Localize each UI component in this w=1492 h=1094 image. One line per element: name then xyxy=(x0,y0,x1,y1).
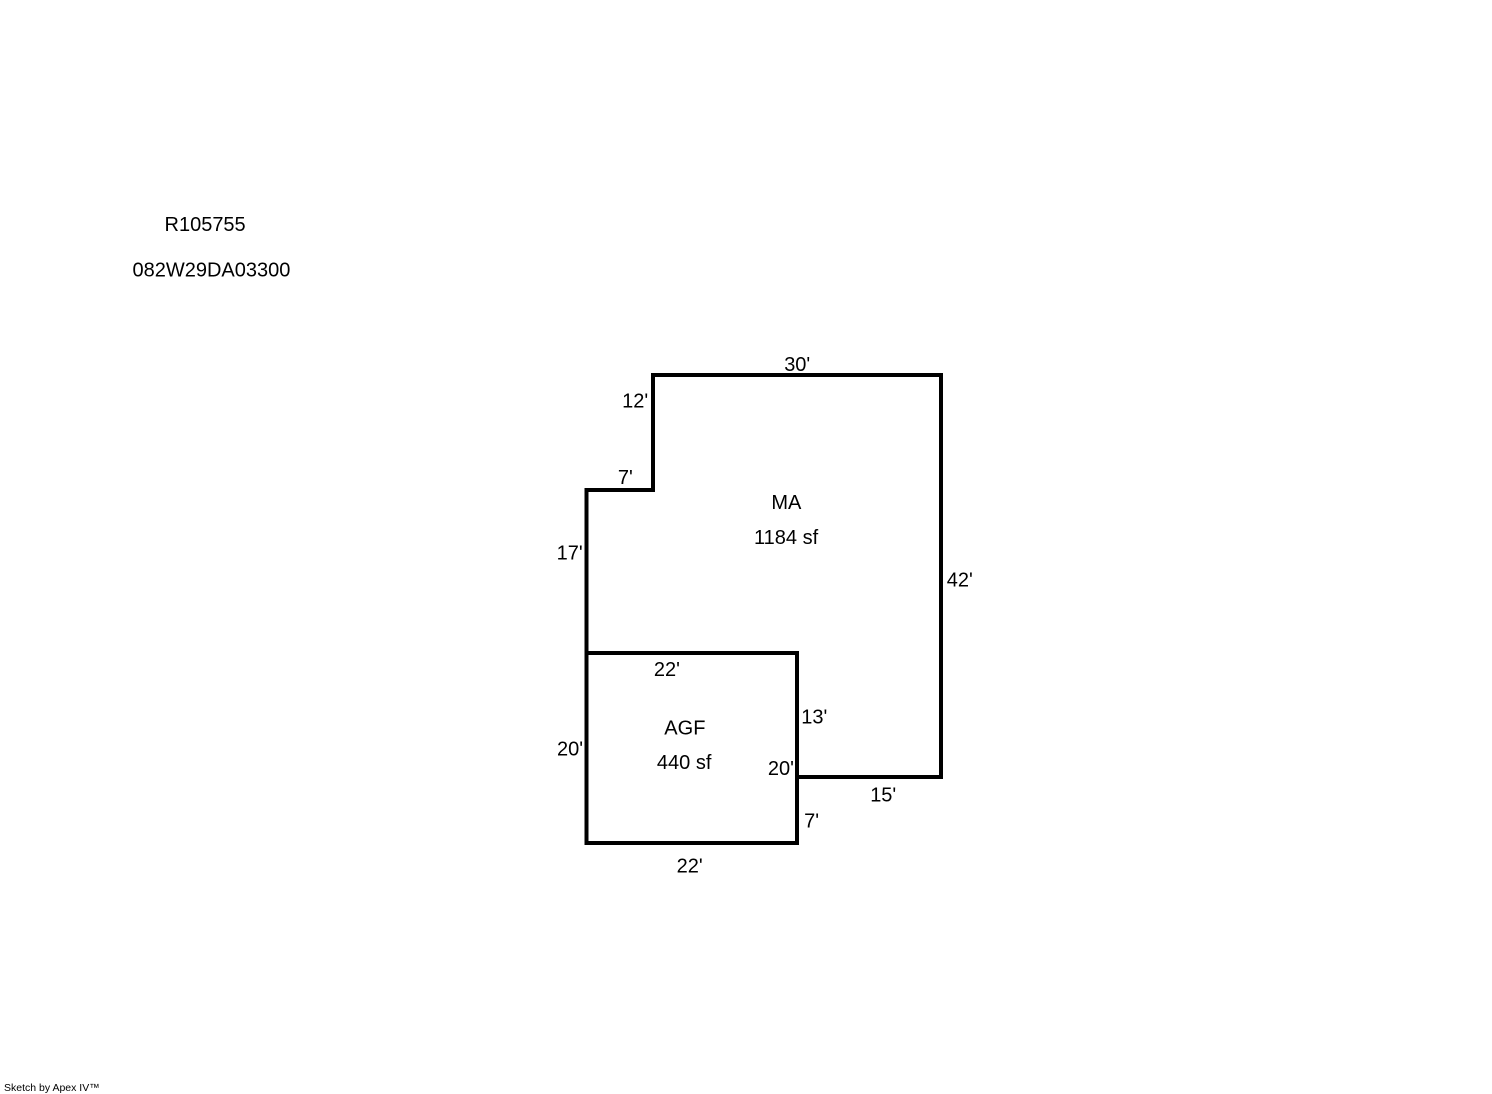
svg-text:MA: MA xyxy=(771,492,802,514)
svg-text:42': 42' xyxy=(947,569,973,591)
svg-text:20': 20' xyxy=(768,758,794,780)
svg-text:Sketch by Apex IV™: Sketch by Apex IV™ xyxy=(4,1082,100,1094)
svg-text:17': 17' xyxy=(557,543,583,565)
svg-text:20': 20' xyxy=(557,738,583,760)
svg-text:1184 sf: 1184 sf xyxy=(754,527,819,549)
svg-text:AGF: AGF xyxy=(664,718,705,740)
svg-text:082W29DA03300: 082W29DA03300 xyxy=(133,259,291,281)
svg-text:22': 22' xyxy=(654,659,680,681)
svg-text:12': 12' xyxy=(622,390,648,412)
svg-text:440 sf: 440 sf xyxy=(657,752,712,774)
svg-text:7': 7' xyxy=(618,467,633,489)
svg-text:22': 22' xyxy=(677,856,703,878)
svg-text:R105755: R105755 xyxy=(165,214,246,236)
svg-text:30': 30' xyxy=(784,354,810,376)
svg-text:7': 7' xyxy=(804,811,819,833)
svg-text:13': 13' xyxy=(801,707,827,729)
svg-text:15': 15' xyxy=(870,785,896,807)
